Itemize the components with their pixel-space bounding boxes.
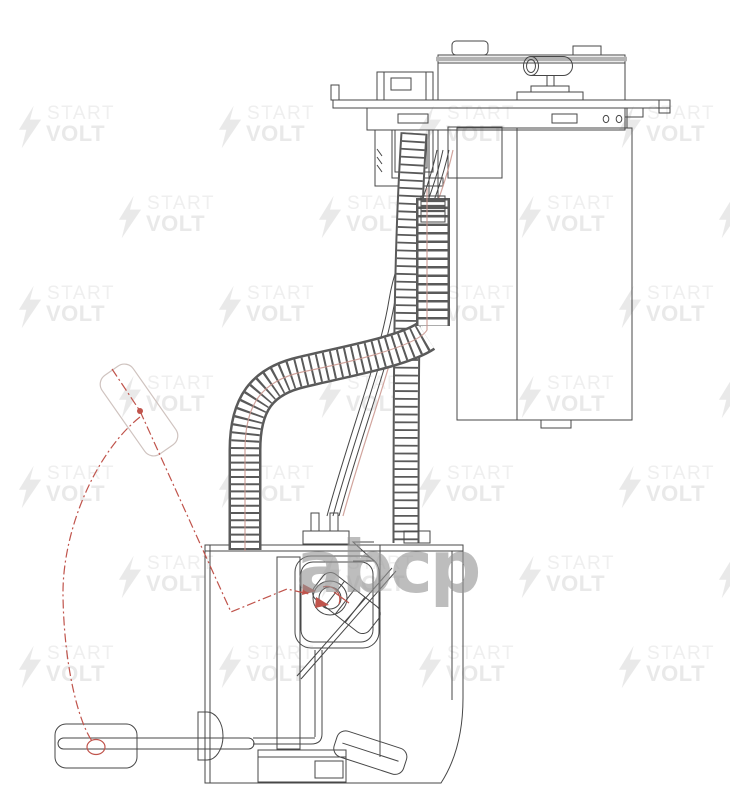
fuel-pump-module-drawing [0,0,730,800]
fuel-filter-canister [457,108,632,428]
electrical-connector [377,72,433,100]
product-image: STARTVOLTSTARTVOLTSTARTVOLTSTARTVOLTSTAR… [0,0,730,800]
flange-plate [331,85,670,130]
pivot-marker [87,740,105,755]
flange-assembly [331,41,670,130]
float [55,724,137,768]
regulator-box [448,127,502,178]
abcp-logo: abcp [296,531,478,603]
float-travel-annotation [63,188,427,755]
travel-arc [63,417,140,741]
